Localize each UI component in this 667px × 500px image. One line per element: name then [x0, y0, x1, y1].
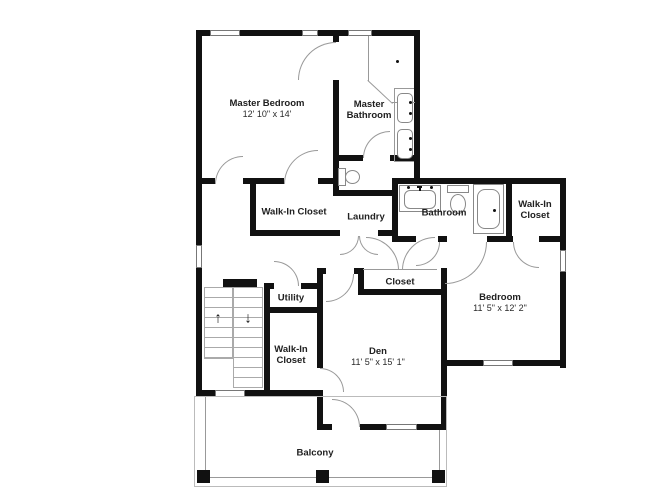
door-arc	[445, 242, 487, 284]
wall	[414, 30, 420, 184]
wall	[196, 30, 202, 397]
wall	[333, 190, 398, 196]
door-arc	[320, 368, 344, 392]
wall	[339, 155, 363, 161]
closet-track-line	[363, 269, 437, 270]
floor-plan: ↑ ↓ Master Bedroom 12' 10" x 14' Master …	[0, 0, 667, 500]
door-arc	[513, 242, 539, 268]
wall	[443, 360, 483, 366]
railing-post	[197, 470, 210, 483]
wall	[513, 360, 566, 366]
door-arc	[363, 131, 390, 158]
wall	[560, 178, 566, 368]
door-arc	[326, 274, 354, 302]
wall	[506, 184, 512, 236]
room-label-den: Den 11' 5" x 15' 1"	[351, 346, 405, 368]
stairs-down-flight	[233, 287, 263, 388]
door-arc	[215, 156, 243, 184]
room-label-bedroom: Bedroom 11' 5" x 12' 2"	[473, 292, 527, 314]
window	[483, 360, 513, 366]
railing-post	[316, 470, 329, 483]
door-arc	[274, 261, 299, 286]
wall	[264, 283, 270, 397]
wall	[264, 283, 274, 289]
wall	[392, 178, 398, 242]
wall	[392, 236, 416, 242]
room-label-master-bedroom: Master Bedroom 12' 10" x 14'	[230, 98, 305, 120]
room-label-balcony: Balcony	[297, 448, 334, 459]
stairs-up-arrow-icon: ↑	[214, 311, 222, 326]
door-arc	[416, 242, 440, 266]
room-label-walk-in-closet-master: Walk-In Closet	[261, 207, 326, 218]
wall	[358, 289, 447, 295]
door-arc	[298, 42, 336, 80]
wall	[487, 236, 513, 242]
room-label-utility: Utility	[278, 293, 304, 304]
wall	[250, 184, 256, 236]
room-label-bathroom: Bathroom	[422, 208, 467, 219]
room-label-walk-in-closet-bedroom: Walk-In Closet	[518, 199, 551, 221]
window	[210, 30, 240, 36]
wall	[318, 178, 339, 184]
wall	[264, 307, 322, 313]
window	[560, 250, 566, 272]
wall	[301, 283, 322, 289]
wall	[539, 236, 566, 242]
window	[196, 245, 202, 268]
wall	[250, 230, 340, 236]
room-label-walk-in-closet-den: Walk-In Closet	[274, 344, 307, 366]
stairs-down-arrow-icon: ↓	[244, 311, 252, 326]
door-arc	[284, 150, 318, 184]
window	[302, 30, 318, 36]
room-label-laundry: Laundry	[347, 212, 384, 223]
wall	[196, 178, 215, 184]
balcony-railing	[205, 397, 206, 477]
room-label-closet: Closet	[385, 277, 414, 288]
room-label-master-bathroom: Master Bathroom	[347, 99, 392, 121]
door-arc	[340, 236, 359, 255]
railing-post	[432, 470, 445, 483]
wall	[317, 268, 326, 274]
